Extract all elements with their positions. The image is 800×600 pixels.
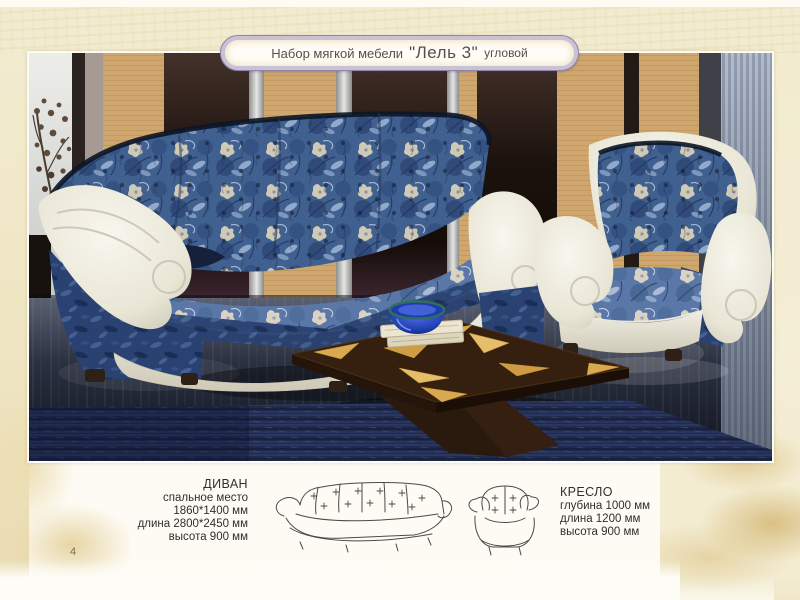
armchair-spec-line: глубина 1000 мм [560, 500, 710, 513]
product-banner-text: Набор мягкой мебели "Лель 3" угловой [225, 40, 574, 66]
product-name: "Лель 3" [409, 43, 478, 63]
banner-suffix: угловой [484, 46, 528, 60]
armchair-specs-title: КРЕСЛО [560, 486, 710, 499]
sofa-spec-line: 1860*1400 мм [60, 505, 248, 518]
bottom-margin [0, 560, 680, 600]
page-number: 4 [70, 546, 76, 558]
armchair-specs: КРЕСЛО глубина 1000 мм длина 1200 мм выс… [560, 486, 710, 539]
sofa-specs: ДИВАН спальное место 1860*1400 мм длина … [60, 478, 248, 544]
product-photo [27, 51, 774, 463]
sofa-spec-line: спальное место [60, 492, 248, 505]
armchair-spec-line: высота 900 мм [560, 526, 710, 539]
banner-prefix: Набор мягкой мебели [271, 46, 403, 61]
product-banner: Набор мягкой мебели "Лель 3" угловой [220, 35, 579, 71]
sofa-line-drawing [266, 474, 456, 558]
catalog-page: Набор мягкой мебели "Лель 3" угловой ДИВ… [0, 0, 800, 600]
sofa-spec-line: длина 2800*2450 мм [60, 518, 248, 531]
sofa-specs-title: ДИВАН [60, 478, 248, 491]
armchair-spec-line: длина 1200 мм [560, 513, 710, 526]
room-scene [29, 53, 772, 461]
carpet-shadow [29, 405, 249, 461]
sofa-spec-line: высота 900 мм [60, 531, 248, 544]
armchair-line-drawing [459, 478, 551, 560]
